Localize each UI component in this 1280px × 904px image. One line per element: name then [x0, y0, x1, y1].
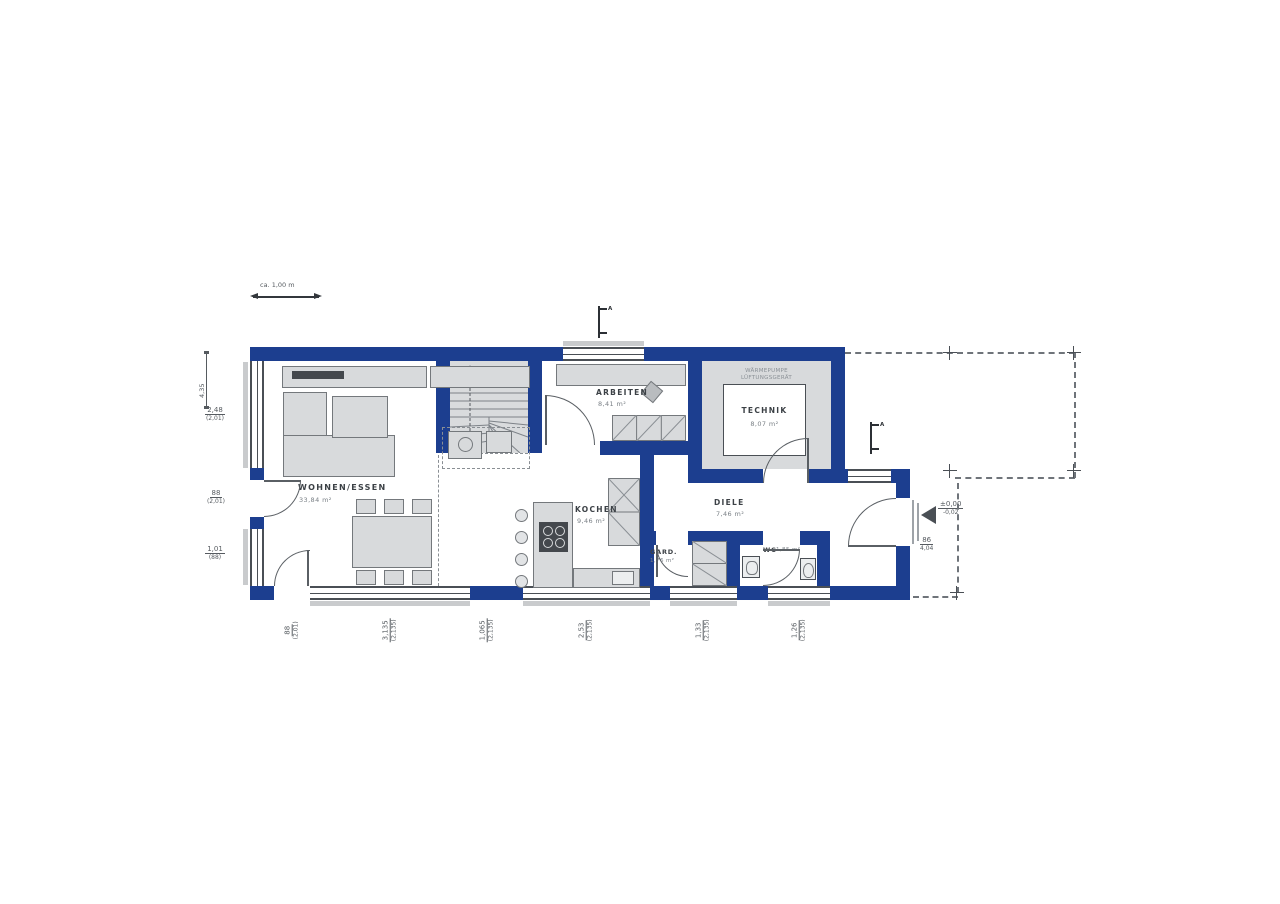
section-marker-tick — [600, 332, 607, 334]
dining-chair — [412, 570, 432, 585]
dimension-bottom: 1,065 (2,135) — [479, 615, 496, 645]
floor-plan: ca. 1,00 m A A — [0, 0, 1280, 904]
wall-segment — [817, 531, 830, 586]
window — [250, 529, 264, 586]
door-swing — [545, 395, 595, 445]
cooktop-burner — [543, 526, 553, 536]
survey-cross-icon — [1067, 346, 1081, 360]
wall-segment — [470, 586, 523, 600]
wall-segment — [528, 361, 542, 453]
cooktop-burner — [555, 538, 565, 548]
wall-segment — [644, 347, 845, 361]
dining-chair — [356, 570, 376, 585]
window — [670, 586, 737, 600]
wall-segment — [640, 455, 654, 586]
wall-segment — [702, 469, 763, 483]
section-marker-tick — [600, 308, 607, 310]
understair-cabinet — [486, 431, 512, 453]
dimension-left-rotated: 4,35 — [198, 384, 206, 398]
window-sill — [768, 601, 830, 606]
room-area-diele: 7,46 m² — [716, 510, 744, 518]
room-divider-dashed — [438, 455, 439, 586]
scale-bar-line — [253, 296, 319, 298]
section-marker-tick — [872, 448, 879, 450]
wall-segment — [737, 586, 768, 600]
section-marker-label: A — [608, 306, 612, 312]
room-label-kochen: KOCHEN — [575, 505, 618, 514]
survey-cross-icon — [950, 586, 964, 600]
terrace-outline — [1074, 352, 1076, 478]
terrace-outline — [957, 483, 959, 593]
window-sill — [523, 601, 650, 606]
dimension-bottom: 88 (2,01) — [284, 615, 301, 645]
wall-segment — [250, 517, 264, 529]
entrance-arrow-icon — [921, 506, 936, 524]
wall-segment — [250, 347, 563, 361]
scale-bar-arrow-left-icon — [250, 293, 258, 299]
wardrobe-cabinet — [692, 541, 727, 586]
sofa — [283, 435, 395, 477]
cooktop-burner — [543, 538, 553, 548]
wall-segment — [250, 468, 264, 480]
dining-chair — [412, 499, 432, 514]
wall-segment — [727, 545, 740, 586]
coffee-table — [332, 396, 388, 438]
window — [310, 586, 470, 600]
terrace-outline — [845, 352, 1075, 354]
room-label-arbeiten: ARBEITEN — [596, 388, 648, 397]
room-area-kochen: 9,46 m² — [577, 517, 605, 525]
dimension-line — [206, 352, 207, 408]
scale-bar-arrow-right-icon — [314, 293, 322, 299]
wall-segment — [250, 586, 274, 600]
dimension-right: 86 4,04 — [920, 536, 933, 553]
dimension-left: 88 (2,01) — [202, 489, 230, 506]
wall-segment — [600, 441, 702, 455]
dimension-bottom: 1,26 (2,135) — [791, 615, 808, 645]
wall-segment — [896, 483, 910, 498]
door-swing — [763, 549, 800, 586]
entrance-level-lower: -0,02 — [938, 509, 963, 516]
dining-chair — [384, 499, 404, 514]
sideboard — [430, 366, 530, 388]
room-label-diele: DIELE — [714, 498, 745, 507]
dimension-bottom: 3,135 (2,135) — [382, 615, 399, 645]
entrance-door-swing — [848, 498, 896, 546]
room-area-arbeiten: 8,41 m² — [598, 400, 626, 408]
wall-segment — [808, 469, 831, 483]
arbeiten-cabinet — [612, 415, 686, 441]
door-leaf — [807, 438, 809, 483]
door-leaf — [307, 550, 309, 586]
dining-chair — [356, 499, 376, 514]
entrance-door-leaf — [848, 545, 896, 547]
window-sill — [310, 601, 470, 606]
wall-segment — [831, 469, 848, 483]
survey-cross-icon — [943, 346, 957, 360]
understair-fixture — [458, 437, 473, 452]
window — [563, 347, 644, 361]
bar-stool — [515, 531, 528, 544]
room-area-wohnen-essen: 33,84 m² — [299, 496, 332, 504]
dimension-left: 2,48 (2,01) — [200, 406, 230, 423]
window — [250, 361, 264, 468]
wall-segment — [654, 531, 656, 545]
bar-stool — [515, 575, 528, 588]
tv-unit — [292, 371, 344, 379]
technik-note-line1: WÄRMEPUMPE — [702, 368, 831, 374]
window — [848, 469, 891, 483]
door-swing — [264, 480, 301, 517]
entrance-level-label: ±0,00 -0,02 — [938, 500, 963, 517]
dimension-bottom: 2,53 (2,135) — [578, 615, 595, 645]
entrance-step — [912, 500, 914, 544]
wall-segment — [650, 586, 670, 600]
room-label-wohnen-essen: WOHNEN/ESSEN — [298, 483, 387, 492]
toilet-bowl — [803, 563, 814, 578]
section-marker-tick — [872, 424, 879, 426]
bar-stool — [515, 509, 528, 522]
door-swing — [656, 545, 688, 577]
wall-segment — [688, 361, 702, 483]
wall-segment — [891, 469, 910, 483]
window — [523, 586, 650, 600]
washbasin-bowl — [746, 561, 758, 575]
section-marker-label: A — [880, 422, 884, 428]
wall-segment — [830, 586, 910, 600]
survey-cross-icon — [943, 464, 957, 478]
dimension-bottom: 1,33 (2,135) — [695, 615, 712, 645]
door-leaf — [545, 395, 547, 445]
dimension-tick — [204, 351, 209, 354]
dining-chair — [384, 570, 404, 585]
door-leaf — [656, 545, 658, 577]
door-leaf — [264, 480, 301, 482]
window — [768, 586, 830, 600]
window-sill — [243, 529, 248, 585]
window-sill — [670, 601, 737, 606]
cooktop-burner — [555, 526, 565, 536]
room-label-technik: TECHNIK — [723, 406, 806, 415]
room-area-technik: 8,07 m² — [723, 420, 806, 428]
entrance-step — [917, 503, 919, 541]
door-swing — [274, 550, 310, 586]
desk — [556, 364, 686, 386]
kitchen-sink — [612, 571, 634, 585]
entrance-level-upper: ±0,00 — [938, 500, 963, 509]
dimension-left: 1,01 (88) — [200, 545, 230, 562]
door-leaf — [763, 549, 800, 551]
scale-bar-label: ca. 1,00 m — [260, 281, 295, 289]
terrace-outline — [955, 477, 1075, 479]
wall-segment — [831, 361, 845, 483]
bar-stool — [515, 553, 528, 566]
technik-note-line2: LÜFTUNGSGERÄT — [702, 375, 831, 381]
window-sill — [563, 341, 644, 346]
survey-cross-icon — [1067, 464, 1081, 478]
dining-table — [352, 516, 432, 568]
cooktop — [539, 522, 568, 552]
window-sill — [243, 362, 248, 468]
